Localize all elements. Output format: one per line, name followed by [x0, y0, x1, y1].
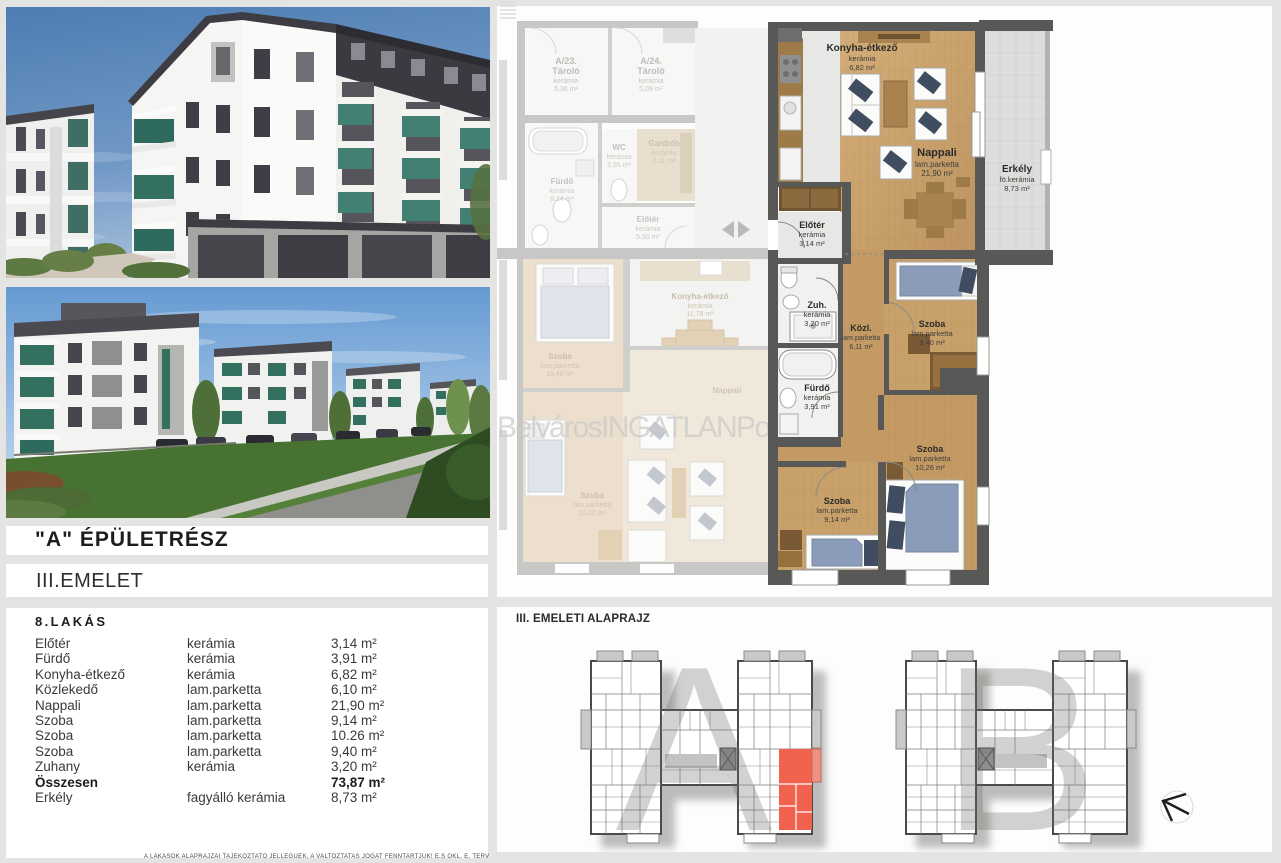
svg-text:Fürdő: Fürdő — [551, 177, 574, 186]
svg-text:Előtér: Előtér — [799, 220, 825, 230]
svg-text:Szoba: Szoba — [548, 352, 572, 361]
svg-text:10,26 m²: 10,26 m² — [915, 463, 945, 472]
svg-text:lam.parketta: lam.parketta — [915, 160, 960, 169]
svg-text:A/23.: A/23. — [555, 56, 577, 66]
svg-text:Konyha-étkező: Konyha-étkező — [826, 43, 897, 54]
svg-text:fö.kerámia: fö.kerámia — [999, 175, 1035, 184]
svg-text:Szoba: Szoba — [919, 319, 946, 329]
svg-text:kerámia: kerámia — [639, 78, 664, 85]
svg-text:5,09 m²: 5,09 m² — [639, 86, 663, 93]
svg-text:3,20 m²: 3,20 m² — [804, 319, 830, 328]
svg-text:kerámia: kerámia — [804, 310, 832, 319]
svg-text:2,11 m²: 2,11 m² — [652, 158, 676, 165]
svg-text:B: B — [942, 617, 1099, 852]
svg-text:Nappali: Nappali — [713, 386, 742, 395]
svg-text:10,22 m²: 10,22 m² — [578, 510, 606, 517]
svg-text:3,14 m²: 3,14 m² — [799, 239, 825, 248]
svg-text:kerámia: kerámia — [554, 78, 579, 85]
svg-text:Fürdő: Fürdő — [804, 383, 830, 393]
svg-text:Zuh.: Zuh. — [808, 300, 827, 310]
svg-text:8,73 m²: 8,73 m² — [1004, 184, 1030, 193]
svg-text:lam.parketta: lam.parketta — [816, 506, 858, 515]
svg-text:9,14 m²: 9,14 m² — [824, 515, 850, 524]
svg-text:9,40 m²: 9,40 m² — [919, 338, 945, 347]
svg-text:Szoba: Szoba — [917, 444, 944, 454]
svg-text:21,90 m²: 21,90 m² — [921, 169, 953, 178]
svg-text:Nappali: Nappali — [917, 147, 957, 159]
svg-text:3,91 m²: 3,91 m² — [804, 402, 830, 411]
svg-text:Közl.: Közl. — [850, 323, 872, 333]
svg-text:Előtér: Előtér — [637, 215, 660, 224]
svg-text:Tároló: Tároló — [637, 66, 665, 76]
svg-text:kerámia: kerámia — [849, 54, 877, 63]
svg-text:6,82 m²: 6,82 m² — [849, 63, 875, 72]
svg-text:lam.parketta: lam.parketta — [842, 335, 881, 342]
svg-text:6,11 m²: 6,11 m² — [849, 344, 873, 351]
svg-text:kerámia: kerámia — [652, 150, 677, 157]
svg-text:lam.parketta: lam.parketta — [573, 502, 612, 509]
svg-text:kerámia: kerámia — [804, 393, 832, 402]
svg-text:kerámia: kerámia — [688, 303, 713, 310]
svg-text:kerámia: kerámia — [799, 230, 827, 239]
svg-text:1,55 m²: 1,55 m² — [607, 162, 631, 169]
svg-text:kerámia: kerámia — [636, 226, 661, 233]
svg-text:5,36 m²: 5,36 m² — [554, 86, 578, 93]
svg-text:Erkély: Erkély — [1002, 164, 1032, 175]
svg-text:A: A — [616, 617, 773, 852]
svg-text:Konyha-étkező: Konyha-étkező — [672, 292, 729, 301]
svg-text:Tároló: Tároló — [552, 66, 580, 76]
svg-text:Szoba: Szoba — [824, 496, 851, 506]
svg-text:kerámia: kerámia — [607, 154, 632, 161]
svg-text:A/24.: A/24. — [640, 56, 662, 66]
svg-text:5,50 m²: 5,50 m² — [636, 234, 660, 241]
svg-text:Gardrób: Gardrób — [648, 139, 680, 148]
svg-text:lam.parketta: lam.parketta — [909, 454, 951, 463]
svg-text:BelvárosINGATLANPont: BelvárosINGATLANPont — [497, 411, 794, 444]
svg-text:Szoba: Szoba — [580, 491, 604, 500]
svg-text:WC: WC — [612, 143, 626, 152]
svg-text:lam.parketta: lam.parketta — [911, 329, 953, 338]
svg-text:11,78 m²: 11,78 m² — [686, 311, 714, 318]
svg-text:lam.parketta: lam.parketta — [541, 363, 580, 370]
svg-text:kerámia: kerámia — [550, 188, 575, 195]
svg-text:15,40 m²: 15,40 m² — [546, 371, 574, 378]
svg-text:8,14 m²: 8,14 m² — [550, 196, 574, 203]
